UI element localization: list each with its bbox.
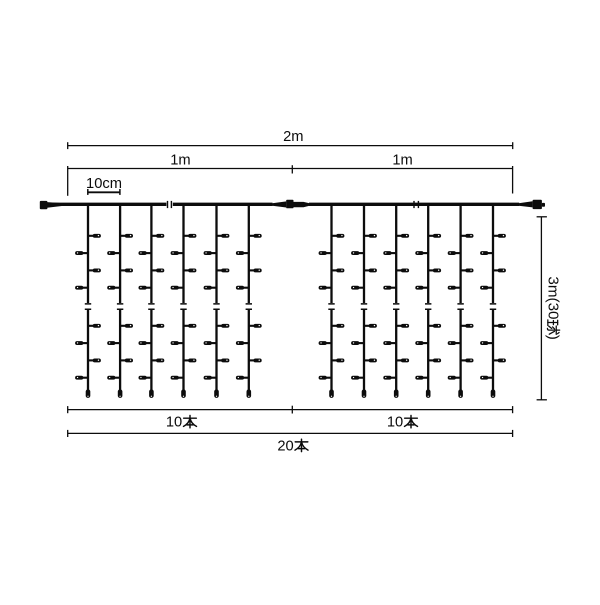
svg-text:10cm: 10cm bbox=[86, 176, 122, 192]
svg-text:2m: 2m bbox=[283, 129, 303, 145]
svg-text:1m: 1m bbox=[170, 152, 190, 168]
svg-text:3m(30: 3m(30 bbox=[544, 276, 561, 319]
svg-text:20: 20 bbox=[277, 438, 293, 454]
svg-text:10: 10 bbox=[387, 415, 403, 431]
svg-text:): ) bbox=[544, 335, 561, 340]
svg-text:10: 10 bbox=[166, 415, 182, 431]
svg-text:1m: 1m bbox=[392, 152, 412, 168]
